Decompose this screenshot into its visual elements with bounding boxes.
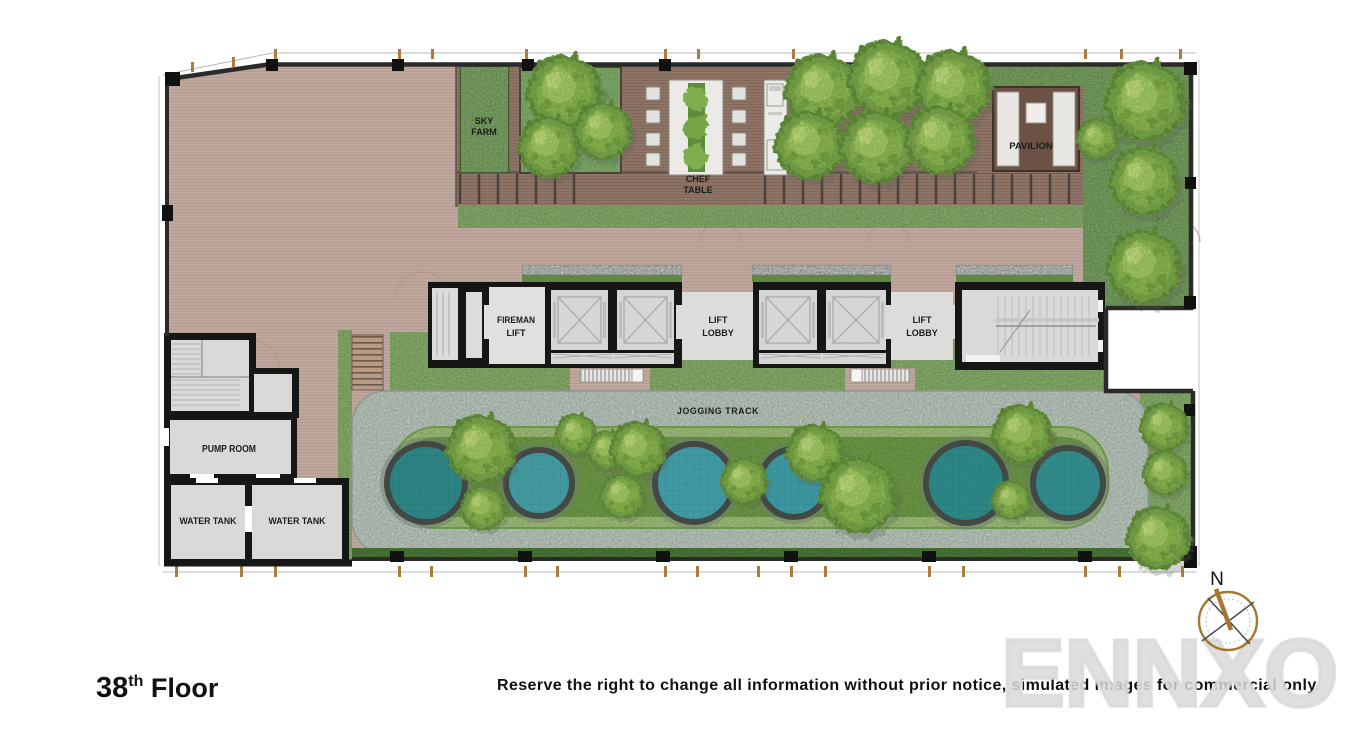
svg-text:FARM: FARM — [471, 127, 497, 137]
svg-text:LOBBY: LOBBY — [702, 328, 734, 338]
svg-text:LIFT: LIFT — [913, 315, 932, 325]
svg-text:PUMP ROOM: PUMP ROOM — [202, 444, 256, 455]
svg-text:CHEF: CHEF — [686, 174, 711, 184]
svg-text:WATER TANK: WATER TANK — [180, 516, 237, 527]
svg-text:SKY: SKY — [475, 116, 494, 126]
svg-text:PAVILION: PAVILION — [1009, 141, 1053, 152]
svg-text:ENNXO: ENNXO — [1001, 620, 1337, 727]
svg-text:LIFT: LIFT — [507, 328, 526, 338]
svg-text:JOGGING TRACK: JOGGING TRACK — [677, 406, 759, 416]
svg-text:N: N — [1210, 569, 1224, 590]
svg-text:TABLE: TABLE — [683, 185, 712, 195]
svg-text:WATER TANK: WATER TANK — [269, 516, 326, 527]
svg-text:LOBBY: LOBBY — [906, 328, 938, 338]
svg-text:38th Floor: 38th Floor — [96, 672, 219, 704]
svg-text:FIREMAN: FIREMAN — [497, 315, 535, 325]
svg-text:LIFT: LIFT — [709, 315, 728, 325]
